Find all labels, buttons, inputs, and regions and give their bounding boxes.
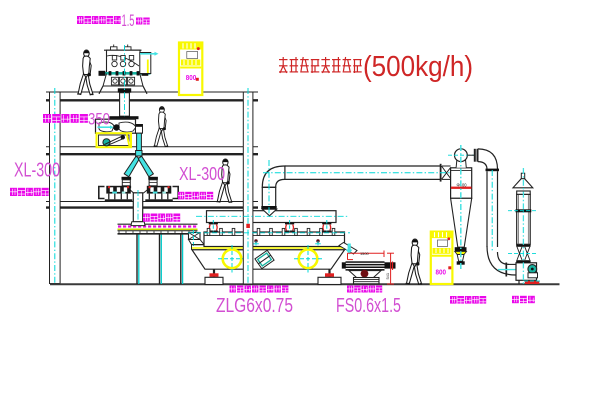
svg-text:XL-300: XL-300	[14, 159, 60, 182]
svg-text:800: 800	[186, 73, 197, 82]
svg-text:1500: 1500	[360, 251, 369, 256]
svg-text:350: 350	[88, 110, 110, 129]
svg-text:XL-300: XL-300	[179, 164, 225, 184]
svg-text:ZLG6x0.75: ZLG6x0.75	[216, 294, 293, 317]
svg-text:1.5: 1.5	[122, 11, 135, 30]
svg-text:541: 541	[385, 273, 390, 280]
svg-text:FS0.6x1.5: FS0.6x1.5	[336, 294, 401, 317]
svg-text:800: 800	[436, 268, 447, 277]
svg-text:(500kg/h): (500kg/h)	[363, 51, 473, 83]
svg-text:Φ400: Φ400	[457, 182, 467, 187]
